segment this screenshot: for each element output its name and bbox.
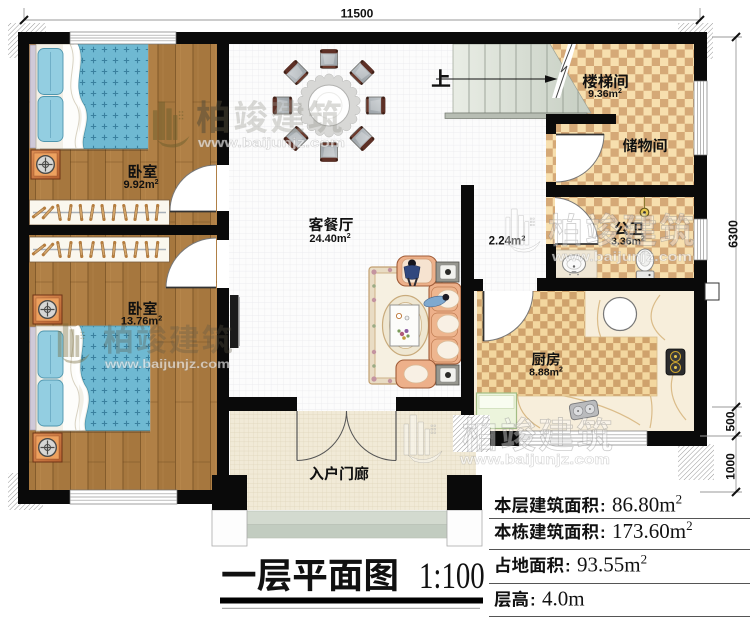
svg-text:www.baijunjz.com: www.baijunjz.com xyxy=(197,135,345,150)
svg-text::: : xyxy=(565,557,571,576)
svg-text:www.baijunjz.com: www.baijunjz.com xyxy=(459,452,610,467)
svg-text:9.92m2: 9.92m2 xyxy=(123,179,158,191)
svg-text:1000: 1000 xyxy=(724,453,738,480)
svg-text::: : xyxy=(600,523,606,542)
svg-text:1:100: 1:100 xyxy=(419,556,485,597)
svg-text:6300: 6300 xyxy=(727,220,741,248)
svg-text:www.baijunjz.com: www.baijunjz.com xyxy=(104,357,230,371)
svg-text::: : xyxy=(530,591,536,610)
svg-text:24.40m2: 24.40m2 xyxy=(309,233,350,245)
svg-text:www.baijunjz.com: www.baijunjz.com xyxy=(551,249,692,264)
svg-text:86.80m2: 86.80m2 xyxy=(612,492,682,517)
svg-text:9.36m2: 9.36m2 xyxy=(588,88,622,100)
svg-text:93.55m2: 93.55m2 xyxy=(577,552,647,577)
svg-text::: : xyxy=(600,497,606,516)
svg-text:11500: 11500 xyxy=(341,7,374,21)
svg-text:4.0m: 4.0m xyxy=(542,587,585,611)
svg-text:8.88m2: 8.88m2 xyxy=(529,367,563,379)
svg-text:500: 500 xyxy=(724,411,738,431)
svg-text:173.60m2: 173.60m2 xyxy=(612,518,693,543)
